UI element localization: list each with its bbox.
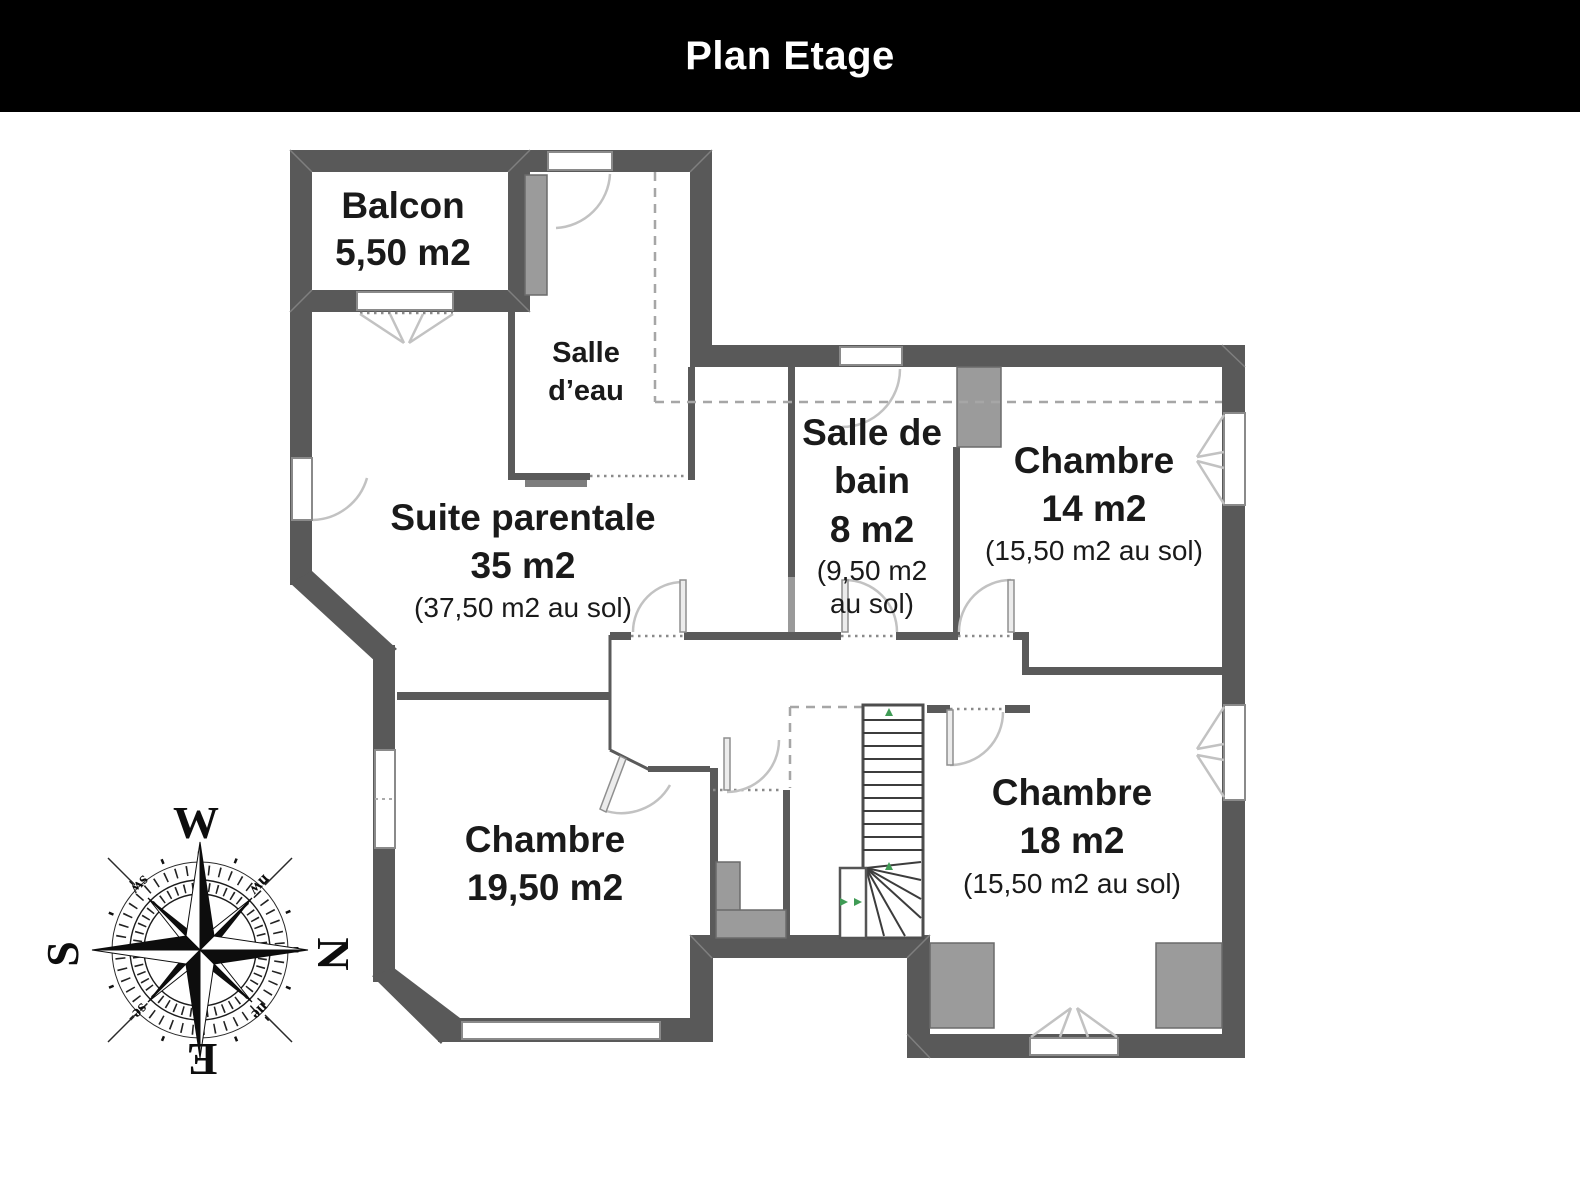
bedroom18-casement-leaves — [1197, 707, 1224, 797]
bedroom14-east-window — [1224, 413, 1245, 505]
stairs — [840, 705, 923, 938]
bedroom19-south-window — [462, 1022, 660, 1039]
suite-window-door-arc — [313, 478, 367, 520]
svg-text:d’eau: d’eau — [548, 375, 624, 407]
bedroom14-casement-leaves — [1197, 415, 1224, 504]
sliding-door-panel — [525, 175, 547, 295]
bedroom18-south-window — [1030, 1038, 1118, 1055]
wc-fixture-panel — [716, 910, 786, 938]
hall-outline — [610, 635, 650, 770]
wc-door-arc — [727, 740, 779, 792]
room-label-salle-deau: Salle d’eau — [548, 337, 624, 407]
balcony-french-door-leaves — [360, 314, 453, 343]
svg-text:Salle: Salle — [552, 337, 620, 369]
svg-text:Salle de: Salle de — [802, 412, 942, 453]
svg-text:Chambre: Chambre — [992, 772, 1152, 813]
compass-rose: W N S E sw nw se ne — [37, 797, 359, 1085]
compass-label-west: W — [173, 797, 219, 848]
bedroom18-closet-right — [1156, 943, 1222, 1028]
svg-text:(37,50 m2 au sol): (37,50 m2 au sol) — [414, 592, 632, 623]
balcony-window — [357, 292, 453, 310]
floor-plan-page: Plan Etage — [0, 0, 1580, 1182]
bedroom18-east-window — [1224, 705, 1245, 800]
compass-label-east: E — [187, 1034, 218, 1085]
svg-text:Balcon: Balcon — [341, 185, 464, 226]
suite-west-window — [292, 458, 312, 520]
svg-text:au sol): au sol) — [830, 588, 914, 619]
page-title: Plan Etage — [685, 34, 895, 79]
compass-label-southeast: se — [128, 1000, 152, 1024]
title-bar: Plan Etage — [0, 0, 1580, 112]
room-label-salle-de-bain: Salle de bain 8 m2 (9,50 m2 au sol) — [802, 412, 942, 619]
room-label-chambre-19: Chambre 19,50 m2 — [465, 819, 625, 908]
svg-text:bain: bain — [834, 460, 910, 501]
floor-plan-canvas: Balcon 5,50 m2 Salle d’eau Suite parenta… — [0, 0, 1580, 1182]
wc-fixture-panel — [716, 862, 740, 912]
compass-label-south: S — [37, 941, 88, 967]
svg-text:Suite parentale: Suite parentale — [390, 497, 655, 538]
bathroom-window — [840, 347, 902, 365]
compass-label-northeast: ne — [247, 999, 273, 1025]
svg-text:Chambre: Chambre — [465, 819, 625, 860]
svg-text:Chambre: Chambre — [1014, 440, 1174, 481]
compass-label-north: N — [308, 937, 359, 970]
room-label-chambre-18: Chambre 18 m2 (15,50 m2 au sol) — [963, 772, 1181, 899]
svg-text:(15,50 m2 au sol): (15,50 m2 au sol) — [963, 868, 1181, 899]
svg-text:14 m2: 14 m2 — [1042, 488, 1147, 529]
chimney-block — [957, 367, 1001, 447]
bedroom14-door-arc — [959, 580, 1011, 632]
bedroom18-south-casement-leaves — [1031, 1008, 1117, 1037]
svg-text:(15,50 m2 au sol): (15,50 m2 au sol) — [985, 535, 1203, 566]
door-leaves — [600, 580, 1014, 812]
room-label-balcon: Balcon 5,50 m2 — [335, 185, 471, 273]
room-label-suite-parentale: Suite parentale 35 m2 (37,50 m2 au sol) — [390, 497, 655, 623]
room-label-chambre-14: Chambre 14 m2 (15,50 m2 au sol) — [985, 440, 1203, 566]
compass-label-northwest: nw — [245, 871, 274, 900]
shower-room-window — [548, 152, 612, 170]
svg-text:5,50 m2: 5,50 m2 — [335, 232, 471, 273]
svg-text:35 m2: 35 m2 — [471, 545, 576, 586]
shower-room-door-arc — [556, 174, 610, 228]
bedroom18-door-arc — [950, 712, 1003, 765]
svg-text:18 m2: 18 m2 — [1020, 820, 1125, 861]
threshold-step — [525, 480, 587, 487]
bedroom18-closet-left — [930, 943, 994, 1028]
svg-text:19,50 m2: 19,50 m2 — [467, 867, 623, 908]
suite-door-arc — [633, 582, 683, 632]
svg-text:(9,50 m2: (9,50 m2 — [817, 555, 928, 586]
svg-text:8 m2: 8 m2 — [830, 509, 914, 550]
angled-door-leaf — [600, 756, 626, 812]
